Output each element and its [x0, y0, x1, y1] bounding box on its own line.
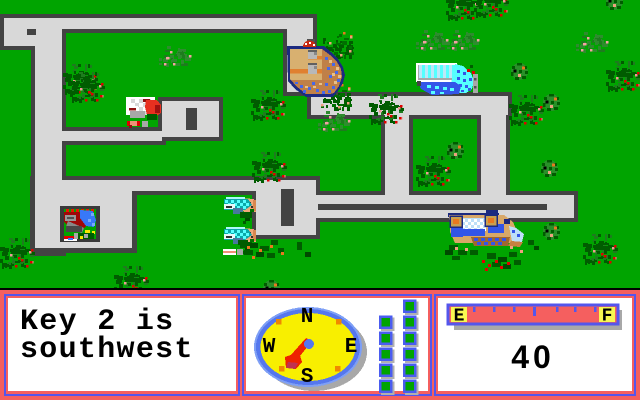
svg-text:E: E — [345, 336, 358, 359]
svg-text:E: E — [454, 307, 465, 327]
svg-text:F: F — [602, 307, 613, 327]
svg-text:W: W — [263, 336, 276, 359]
svg-text:S: S — [301, 366, 314, 389]
svg-text:southwest: southwest — [20, 333, 194, 367]
svg-text:N: N — [301, 306, 314, 329]
svg-text:40: 40 — [511, 339, 555, 375]
